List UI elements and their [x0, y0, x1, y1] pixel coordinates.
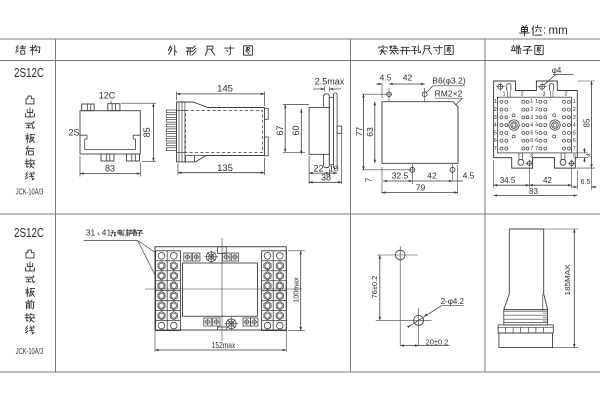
- svg-text:32.5: 32.5: [392, 170, 409, 180]
- svg-text:4: 4: [586, 153, 593, 157]
- svg-text:42: 42: [543, 176, 552, 185]
- svg-text:42: 42: [403, 72, 413, 82]
- svg-text:5: 5: [573, 130, 576, 136]
- svg-text:1: 1: [494, 99, 497, 105]
- svg-text:31: 31: [86, 227, 96, 237]
- svg-text:42: 42: [427, 170, 437, 180]
- svg-text:41: 41: [102, 227, 112, 237]
- svg-text:1: 1: [535, 99, 538, 105]
- svg-text:4.5: 4.5: [463, 170, 475, 180]
- svg-text:2: 2: [530, 107, 533, 113]
- svg-text:6.5: 6.5: [581, 179, 591, 186]
- svg-text:85: 85: [142, 127, 152, 137]
- svg-text:6: 6: [573, 138, 576, 144]
- svg-text:5: 5: [494, 130, 497, 136]
- svg-text:JCK-10A/3: JCK-10A/3: [16, 186, 44, 196]
- svg-text:8: 8: [573, 154, 576, 160]
- svg-text:76±0.2: 76±0.2: [370, 276, 379, 299]
- svg-text:60: 60: [291, 125, 301, 135]
- svg-text:85: 85: [582, 118, 591, 127]
- svg-text:7: 7: [573, 146, 576, 152]
- svg-text:6: 6: [530, 138, 533, 144]
- svg-text:100max: 100max: [291, 277, 300, 302]
- svg-text:6: 6: [535, 138, 538, 144]
- svg-text:38: 38: [321, 173, 331, 183]
- svg-text:JCK-10A/3: JCK-10A/3: [16, 346, 44, 356]
- svg-text:2S12C: 2S12C: [14, 65, 44, 80]
- svg-text:4: 4: [573, 123, 576, 129]
- svg-text:2-φ4.2: 2-φ4.2: [441, 297, 465, 306]
- svg-text:83: 83: [529, 187, 538, 196]
- svg-text:3: 3: [494, 115, 497, 121]
- svg-text:83: 83: [105, 163, 115, 173]
- svg-text:2.5max: 2.5max: [315, 77, 345, 87]
- svg-text:3: 3: [535, 115, 538, 121]
- svg-text:8: 8: [530, 154, 533, 160]
- svg-text:77: 77: [354, 127, 364, 137]
- svg-text:3: 3: [542, 92, 545, 98]
- svg-text:4.5: 4.5: [380, 72, 392, 82]
- svg-text:2S12C: 2S12C: [14, 225, 44, 240]
- svg-text:mm: mm: [549, 25, 568, 37]
- svg-text:135: 135: [217, 163, 233, 174]
- svg-text:152max: 152max: [212, 340, 236, 350]
- svg-text:4: 4: [530, 123, 533, 129]
- svg-text:7: 7: [535, 146, 538, 152]
- svg-text:67: 67: [275, 125, 285, 135]
- svg-text:1: 1: [502, 92, 505, 98]
- svg-text:B6(φ3.2): B6(φ3.2): [432, 76, 466, 86]
- svg-text:5: 5: [535, 130, 538, 136]
- svg-text:12C: 12C: [99, 91, 116, 101]
- svg-text:145: 145: [217, 84, 233, 95]
- svg-text:7: 7: [530, 146, 533, 152]
- svg-text:63: 63: [365, 127, 375, 137]
- svg-text:185MAX: 185MAX: [563, 264, 572, 295]
- svg-text:2S: 2S: [68, 127, 79, 137]
- svg-text:20±0.2: 20±0.2: [426, 338, 449, 347]
- svg-text:1: 1: [530, 99, 533, 105]
- svg-text:7: 7: [494, 146, 497, 152]
- svg-text:6: 6: [494, 138, 497, 144]
- svg-text:3: 3: [573, 115, 576, 121]
- svg-text:4: 4: [494, 123, 497, 129]
- svg-text:2: 2: [573, 107, 576, 113]
- svg-text:5: 5: [530, 130, 533, 136]
- svg-text::: :: [543, 24, 546, 36]
- svg-text:1: 1: [573, 99, 576, 105]
- svg-text:2: 2: [564, 92, 567, 98]
- svg-text:34.5: 34.5: [500, 176, 516, 185]
- svg-text:79: 79: [416, 182, 426, 192]
- svg-text:3: 3: [530, 115, 533, 121]
- svg-text:RM2×2: RM2×2: [435, 88, 463, 98]
- svg-text:7: 7: [364, 177, 374, 182]
- svg-text:φ4: φ4: [552, 66, 562, 75]
- svg-text:4: 4: [535, 123, 538, 129]
- svg-text:2: 2: [535, 107, 538, 113]
- svg-text:2: 2: [494, 107, 497, 113]
- svg-text:2: 2: [521, 92, 524, 98]
